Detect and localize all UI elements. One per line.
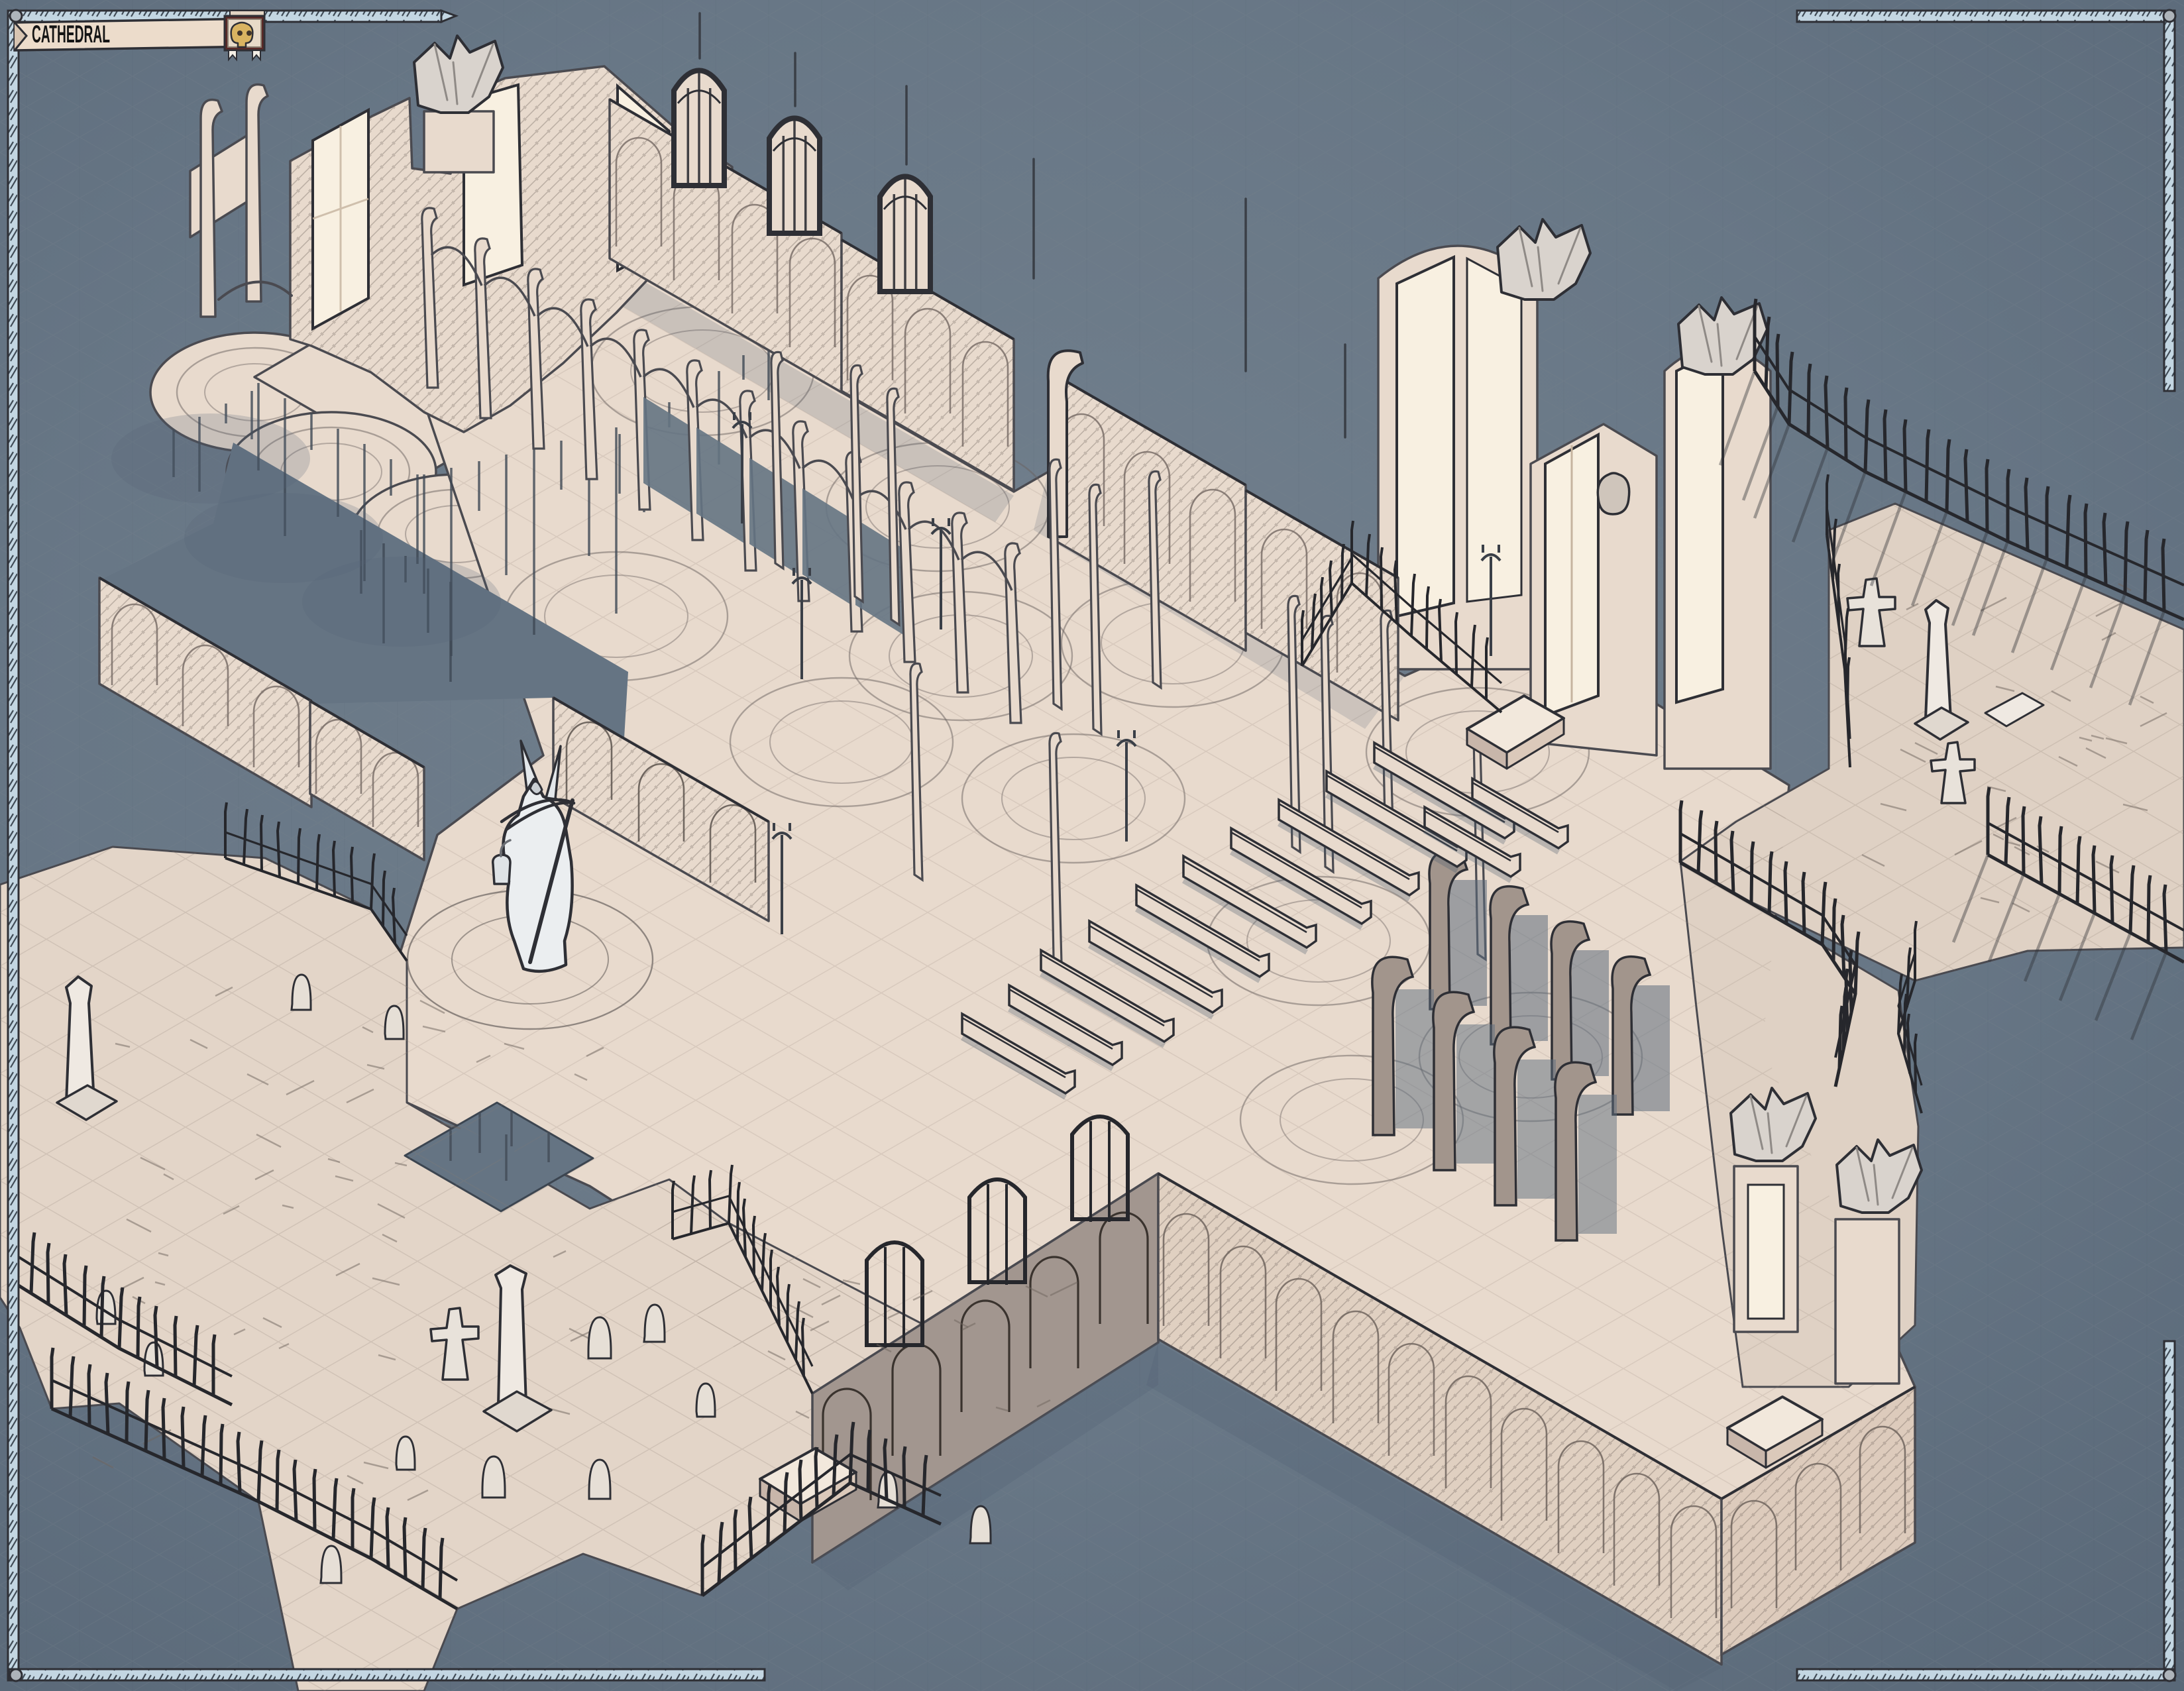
svg-text:CATHEDRAL: CATHEDRAL bbox=[32, 21, 110, 48]
